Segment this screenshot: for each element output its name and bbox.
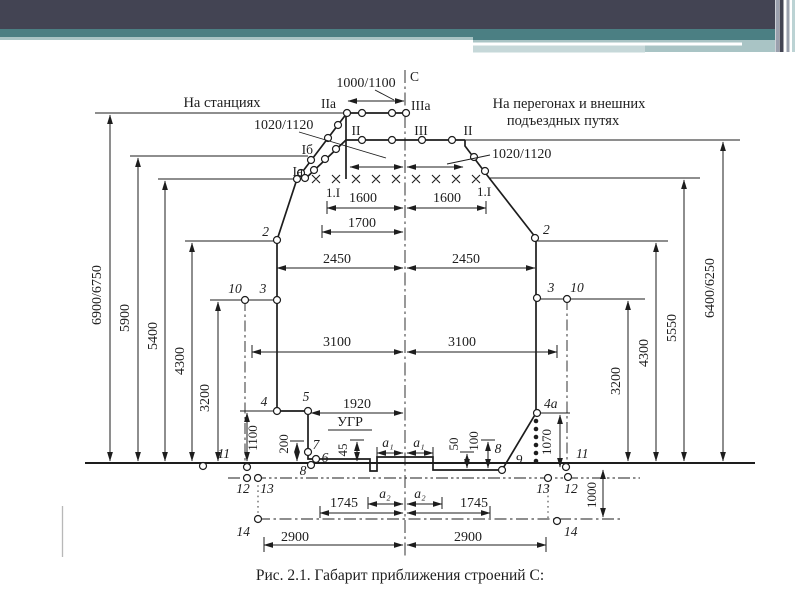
dim-5900: 5900 xyxy=(118,304,133,332)
dim-3100-right: 3100 xyxy=(448,335,476,350)
point-9: 9 xyxy=(516,452,523,467)
profile-III: III xyxy=(414,123,428,138)
dim-200: 200 xyxy=(276,434,291,454)
dim-3100-left: 3100 xyxy=(323,335,351,350)
dim-100: 100 xyxy=(466,431,481,451)
dim-1100: 1100 xyxy=(245,425,260,451)
figure-caption: Рис. 2.1. Габарит приближения строений С… xyxy=(256,567,544,584)
clearance-diagram-svg: На станциях На перегонах и внешних подъе… xyxy=(0,0,800,600)
point-6: 6 xyxy=(322,450,329,465)
profile-II-right: II xyxy=(464,123,473,138)
extension-ticks xyxy=(252,201,557,552)
dim-3200-right: 3200 xyxy=(609,367,624,395)
header-stripe-4 xyxy=(792,0,795,52)
profile-II-left: II xyxy=(352,123,361,138)
centerlines xyxy=(228,70,640,558)
region-label-right-1: На перегонах и внешних xyxy=(493,96,646,112)
point-5: 5 xyxy=(303,389,310,404)
point-11-right: 11 xyxy=(576,446,589,461)
dim-a2-right: a₂ xyxy=(414,486,426,501)
dim-a1-left: a₁ xyxy=(382,435,393,450)
rotated-dimension-labels: 6900/6750 5900 5400 4300 3200 3200 4300 … xyxy=(90,258,718,508)
header-bar-teal-right xyxy=(473,29,775,40)
point-3-right: 3 xyxy=(547,280,555,295)
point-13-left: 13 xyxy=(260,481,274,496)
point-10-left: 10 xyxy=(228,281,242,296)
dim-1745-right: 1745 xyxy=(460,496,488,511)
profile-1I-left: 1.I xyxy=(326,185,340,200)
label-ugr: УГР xyxy=(337,415,363,430)
header-white-stripe xyxy=(473,43,742,46)
dim-1070: 1070 xyxy=(539,429,554,455)
point-3-left: 3 xyxy=(259,281,267,296)
dim-6900-6750: 6900/6750 xyxy=(90,265,105,325)
dim-2900-left: 2900 xyxy=(281,530,309,545)
dim-a2-left: a₂ xyxy=(379,486,391,501)
profile-Ia: Iа xyxy=(293,164,304,179)
profile-IIIa: IIIа xyxy=(411,98,430,113)
point-10-right: 10 xyxy=(570,280,584,295)
dim-3200-left: 3200 xyxy=(198,384,213,412)
dim-5400: 5400 xyxy=(146,322,161,350)
dim-4300-right: 4300 xyxy=(637,339,652,367)
dim-a1-right: a₁ xyxy=(413,435,424,450)
header-stripe-2 xyxy=(780,0,784,52)
dim-2900-right: 2900 xyxy=(454,530,482,545)
dim-2450-right: 2450 xyxy=(452,252,480,267)
point-2-left: 2 xyxy=(262,224,269,239)
header-band-thin xyxy=(0,37,473,40)
dim-45: 45 xyxy=(335,444,350,457)
point-12-right: 12 xyxy=(564,481,578,496)
dim-5550: 5550 xyxy=(665,314,680,342)
point-4a: 4a xyxy=(544,396,558,411)
header-bar-dark xyxy=(0,0,775,29)
header-stripe-3 xyxy=(787,0,790,52)
dim-1700: 1700 xyxy=(348,216,376,231)
dim-1600-left: 1600 xyxy=(349,191,377,206)
point-12-left: 12 xyxy=(236,481,250,496)
slide-header-decoration xyxy=(0,0,795,53)
dim-50: 50 xyxy=(446,438,461,451)
dim-1600-right: 1600 xyxy=(433,191,461,206)
header-stripe-1 xyxy=(776,0,780,52)
point-7: 7 xyxy=(313,437,321,452)
dim-1000: 1000 xyxy=(584,482,599,508)
dim-1920: 1920 xyxy=(343,397,371,412)
header-band-pale xyxy=(473,46,645,53)
point-14-left: 14 xyxy=(237,524,251,539)
dim-1020-right: 1020/1120 xyxy=(492,147,551,162)
dim-1745-left: 1745 xyxy=(330,496,358,511)
dim-6400-6250: 6400/6250 xyxy=(703,258,718,318)
dim-2450-left: 2450 xyxy=(323,252,351,267)
point-4: 4 xyxy=(261,394,268,409)
point-11-left: 11 xyxy=(218,446,231,461)
profile-1I-right: 1.I xyxy=(477,184,491,199)
presentation-slide: На станциях На перегонах и внешних подъе… xyxy=(0,0,800,600)
x-marks-row xyxy=(312,175,480,183)
point-13-right: 13 xyxy=(536,481,550,496)
dim-4300-left: 4300 xyxy=(173,347,188,375)
profile-IIa: IIа xyxy=(321,96,336,111)
dotted-column xyxy=(534,419,539,464)
point-2-right: 2 xyxy=(543,222,550,237)
point-8-right: 8 xyxy=(495,441,502,456)
dim-1020-left: 1020/1120 xyxy=(254,118,313,133)
dim-1000-1100: 1000/1100 xyxy=(336,76,395,91)
profile-Ib: Iб xyxy=(302,142,313,157)
region-label-right-2: подъездных путях xyxy=(507,113,620,129)
point-14-right: 14 xyxy=(564,524,578,539)
point-8-left: 8 xyxy=(300,463,307,478)
region-label-left: На станциях xyxy=(183,95,261,111)
centerline-label: C xyxy=(410,69,419,84)
